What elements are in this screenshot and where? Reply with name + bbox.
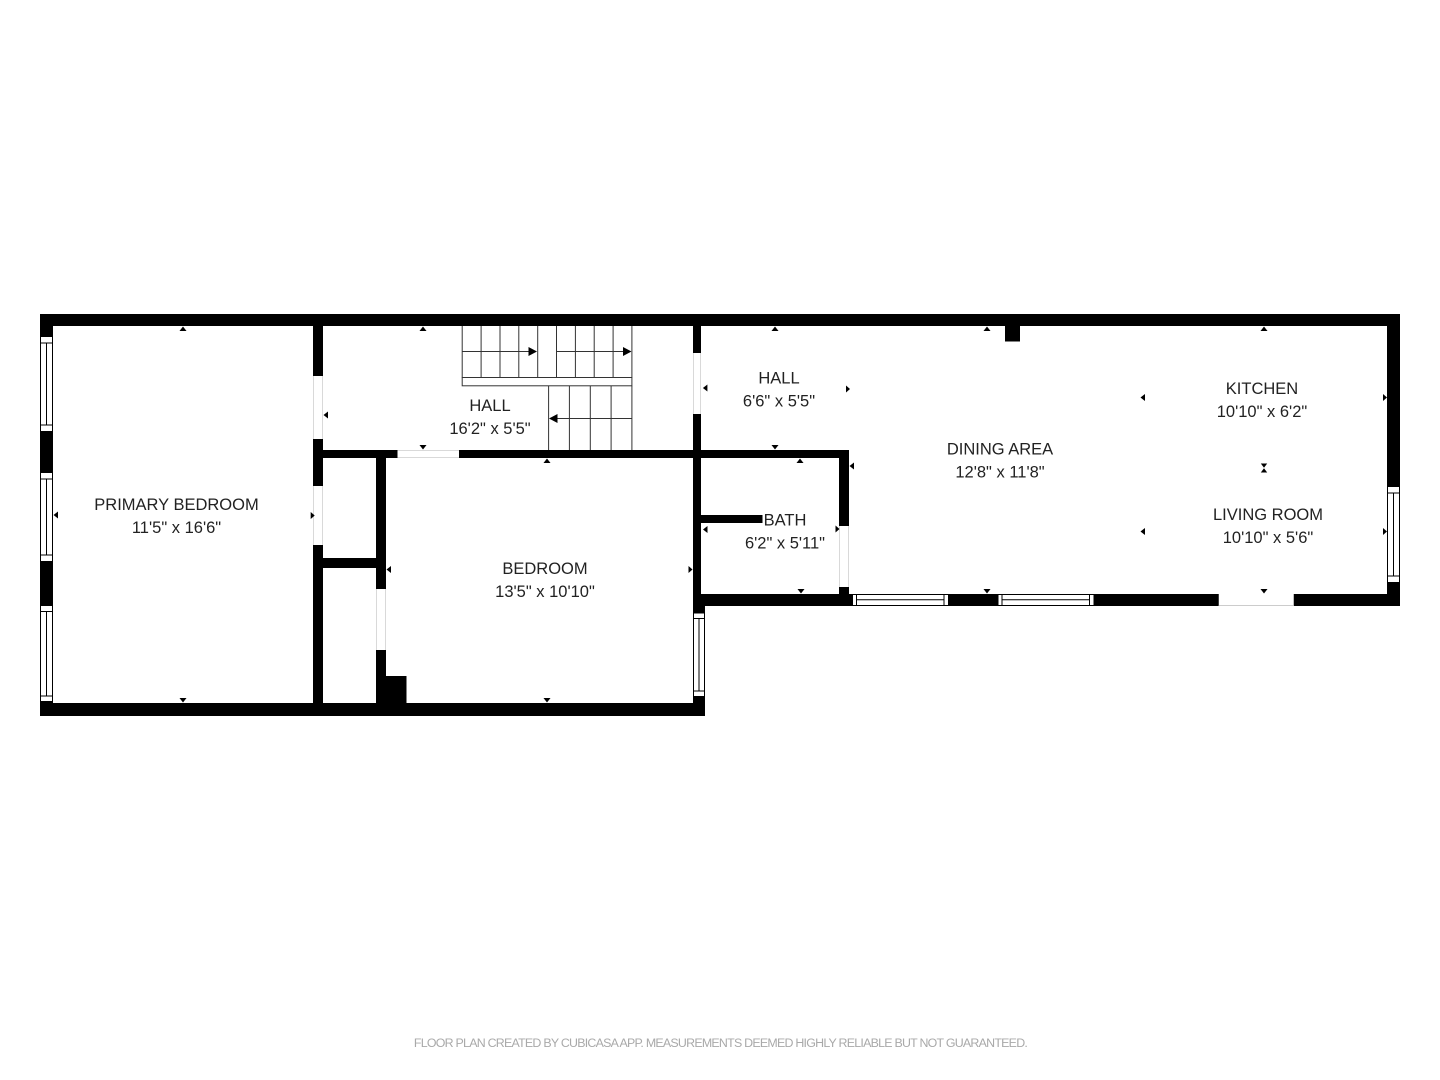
svg-text:PRIMARY BEDROOM: PRIMARY BEDROOM bbox=[94, 496, 258, 514]
svg-text:BEDROOM: BEDROOM bbox=[502, 560, 587, 578]
svg-text:6'6" x 5'5": 6'6" x 5'5" bbox=[743, 393, 815, 411]
svg-text:DINING AREA: DINING AREA bbox=[947, 440, 1053, 458]
svg-text:HALL: HALL bbox=[469, 397, 510, 415]
svg-text:FLOOR PLAN CREATED BY CUBICASA: FLOOR PLAN CREATED BY CUBICASA APP. MEAS… bbox=[414, 1036, 1027, 1050]
svg-text:12'8" x 11'8": 12'8" x 11'8" bbox=[955, 463, 1044, 481]
svg-text:BATH: BATH bbox=[764, 511, 807, 529]
svg-text:13'5" x 10'10": 13'5" x 10'10" bbox=[495, 583, 595, 601]
svg-text:16'2" x 5'5": 16'2" x 5'5" bbox=[449, 420, 530, 438]
svg-text:10'10" x 6'2": 10'10" x 6'2" bbox=[1217, 403, 1308, 421]
svg-text:HALL: HALL bbox=[758, 370, 799, 388]
svg-text:6'2" x 5'11": 6'2" x 5'11" bbox=[745, 534, 825, 552]
svg-text:KITCHEN: KITCHEN bbox=[1226, 380, 1298, 398]
svg-text:11'5" x 16'6": 11'5" x 16'6" bbox=[132, 519, 221, 537]
svg-text:LIVING ROOM: LIVING ROOM bbox=[1213, 506, 1323, 524]
svg-text:10'10" x 5'6": 10'10" x 5'6" bbox=[1223, 529, 1314, 547]
